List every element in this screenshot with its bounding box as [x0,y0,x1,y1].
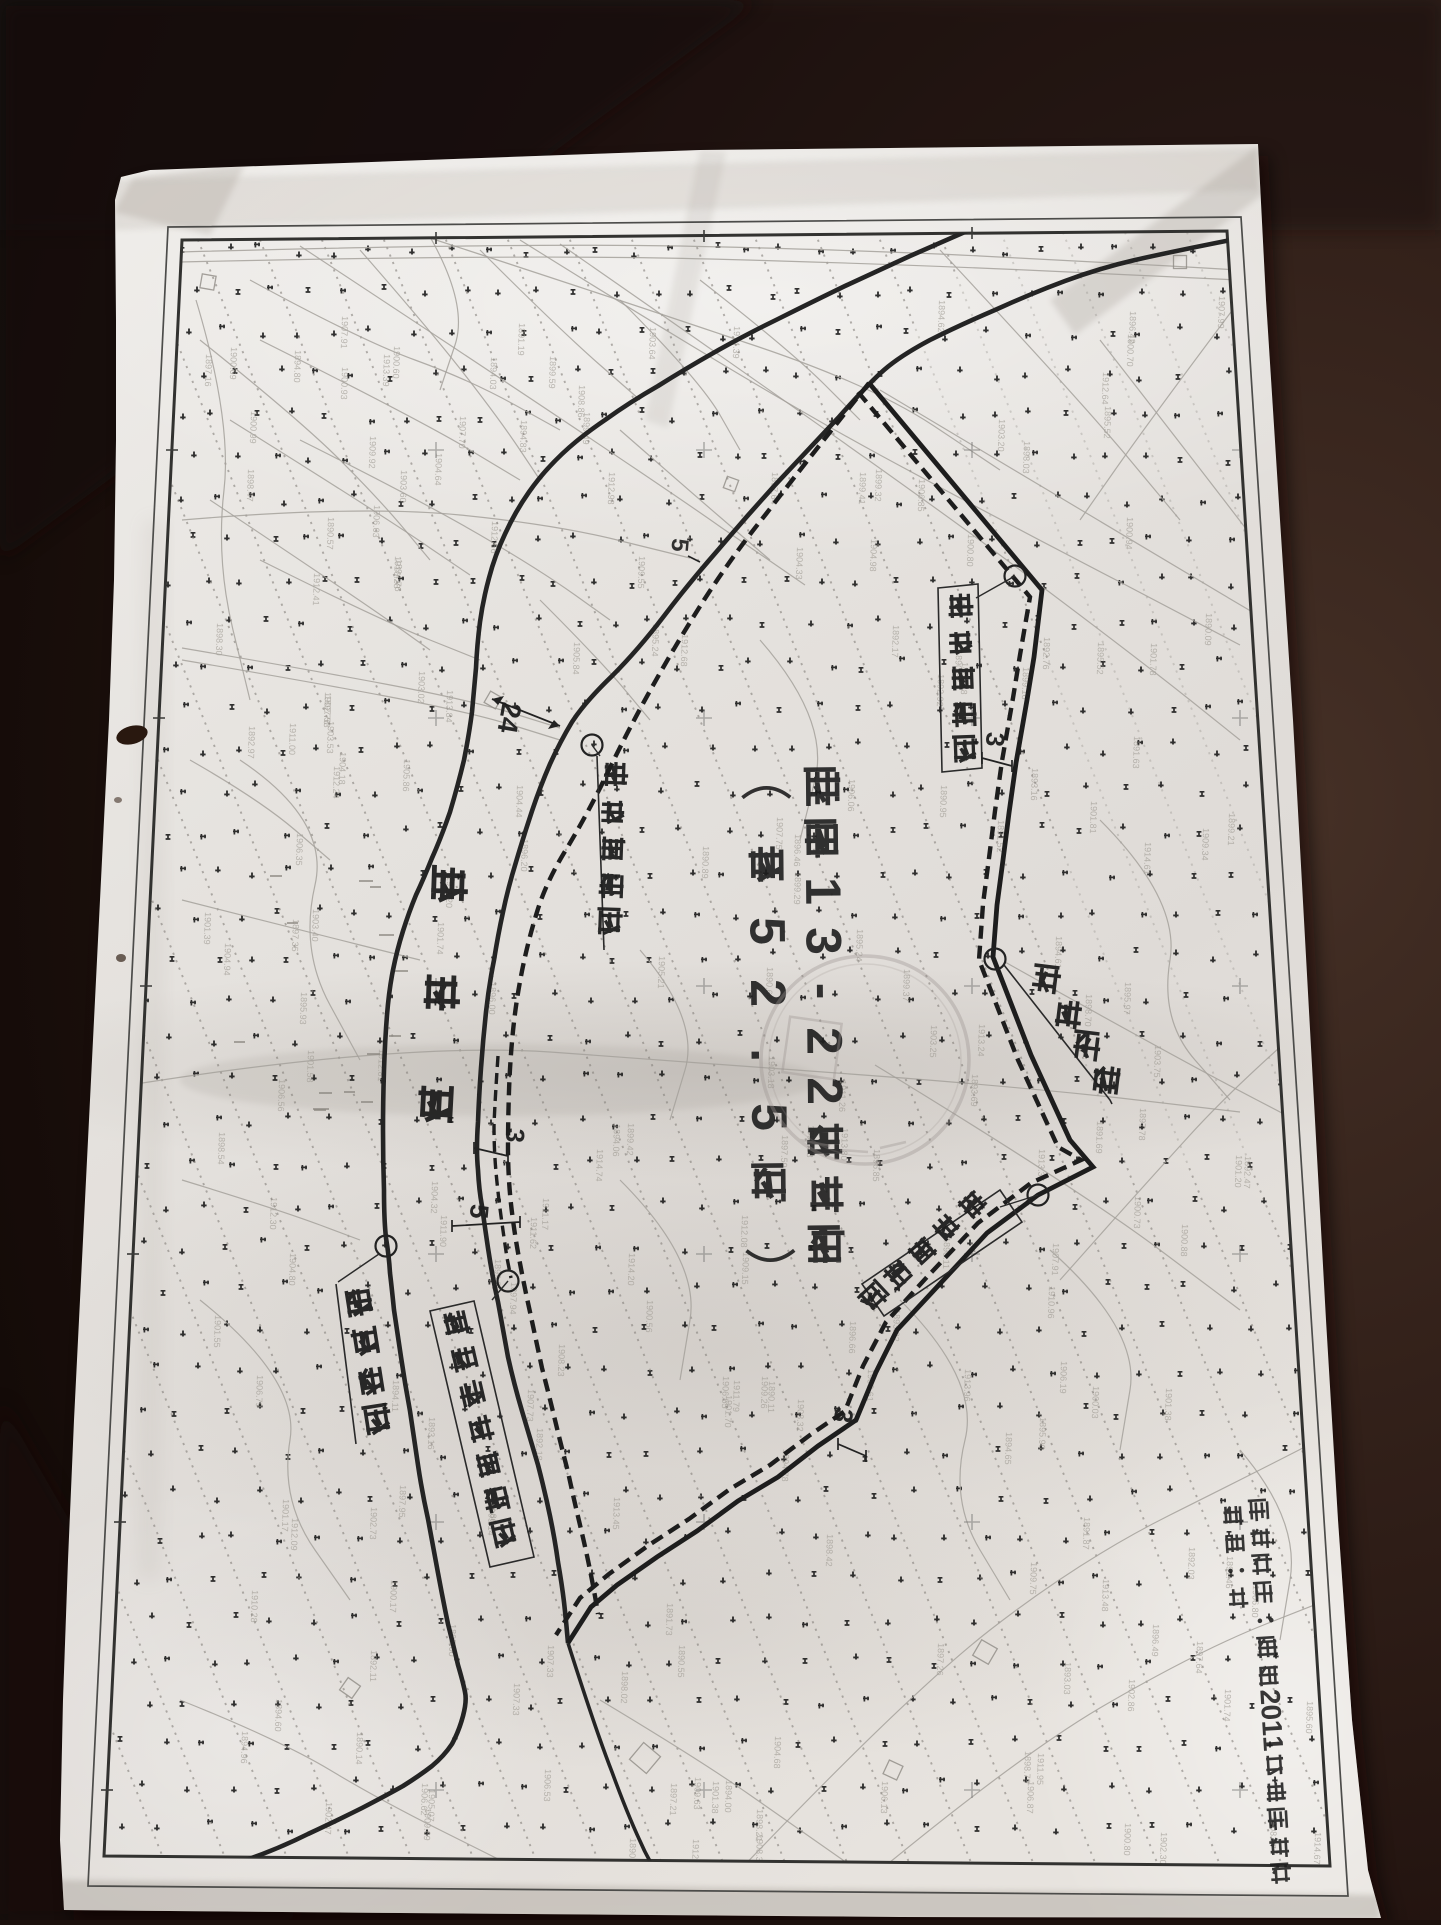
svg-text:1894.65: 1894.65 [1003,1432,1014,1465]
svg-text:1900.80: 1900.80 [1122,1823,1133,1856]
svg-text:1909.34: 1909.34 [1200,828,1211,861]
svg-text:1904.98: 1904.98 [868,539,879,572]
svg-text:2: 2 [797,1077,853,1105]
svg-text:2: 2 [796,1027,852,1055]
svg-text:1906.53: 1906.53 [542,1769,553,1802]
svg-text:1891.19: 1891.19 [516,323,527,356]
svg-text:1894.96: 1894.96 [239,1731,250,1764]
svg-text:1909.26: 1909.26 [759,1376,770,1409]
svg-text:1903.60: 1903.60 [398,470,409,503]
svg-text:1894.11: 1894.11 [390,1380,401,1412]
svg-text:1904.32: 1904.32 [429,1181,440,1214]
svg-text:1897.53: 1897.53 [322,695,333,728]
svg-text:1902.30: 1902.30 [1158,1832,1169,1865]
svg-text:1901.74: 1901.74 [1222,1689,1233,1722]
svg-text:1904.64: 1904.64 [433,453,444,486]
svg-text:1897.21: 1897.21 [668,1783,679,1816]
svg-text:1894.61: 1894.61 [1053,936,1064,969]
svg-text:1904.80: 1904.80 [287,1253,298,1286]
svg-text:1898.47: 1898.47 [245,469,256,502]
svg-text:1899.42: 1899.42 [625,1123,636,1156]
svg-text:1901.58: 1901.58 [305,1050,316,1083]
svg-text:1914.20: 1914.20 [626,1253,637,1286]
svg-text:1903.20: 1903.20 [996,419,1007,452]
svg-text:1892.17: 1892.17 [890,625,901,658]
svg-text:1908.32: 1908.32 [795,1399,806,1432]
svg-text:1894.62: 1894.62 [936,300,947,333]
svg-text:1897.95: 1897.95 [397,1485,408,1518]
svg-text:1903.25: 1903.25 [928,1025,939,1058]
svg-text:1911.00: 1911.00 [287,723,298,755]
svg-text:1896.66: 1896.66 [847,1321,858,1354]
svg-text:1913.39: 1913.39 [381,354,392,387]
svg-text:1895.52: 1895.52 [1095,642,1106,675]
svg-text:1901.39: 1901.39 [202,912,213,945]
svg-text:1898.54: 1898.54 [216,1132,227,1165]
svg-text:1896.46: 1896.46 [792,834,803,867]
svg-text:1913.96: 1913.96 [962,1369,973,1402]
svg-text:1900.56: 1900.56 [644,1300,655,1333]
svg-text:1906.79: 1906.79 [254,1375,265,1408]
svg-text:1896.49: 1896.49 [1150,1624,1161,1657]
svg-text:1896.42: 1896.42 [1127,311,1138,344]
svg-text:1907.91: 1907.91 [339,316,350,349]
svg-text:1914.74: 1914.74 [594,1149,605,1182]
svg-text:1907.33: 1907.33 [545,1645,556,1678]
svg-text:1911.95: 1911.95 [1035,1753,1046,1785]
svg-text:1901.38: 1901.38 [710,1781,721,1814]
svg-text:1900.88: 1900.88 [1179,1224,1190,1257]
svg-text:1901.38: 1901.38 [1163,1388,1174,1421]
svg-text:1912.08: 1912.08 [739,1215,750,1248]
svg-text:1898.30: 1898.30 [214,623,225,656]
svg-text:1902.47: 1902.47 [323,1802,334,1835]
svg-text:1898.02: 1898.02 [619,1671,630,1704]
svg-text:1904.68: 1904.68 [772,1736,783,1769]
svg-text:1904.44: 1904.44 [514,785,525,818]
svg-text:1895.97: 1895.97 [1122,982,1133,1015]
svg-text:1890.14: 1890.14 [354,1732,365,1765]
svg-text:1900.17: 1900.17 [388,1580,399,1613]
svg-text:1898.03: 1898.03 [1021,441,1032,474]
svg-text:1897.16: 1897.16 [203,354,214,387]
svg-text:1899.59: 1899.59 [547,356,558,389]
svg-text:1900.99: 1900.99 [248,411,259,444]
svg-text:1905.84: 1905.84 [571,642,582,675]
svg-text:1895.60: 1895.60 [1304,1701,1315,1734]
svg-text:1907.91: 1907.91 [1050,1243,1061,1276]
svg-text:1901.20: 1901.20 [1233,1155,1244,1188]
svg-text:1892.11: 1892.11 [368,1650,379,1682]
svg-text:1892.03: 1892.03 [1186,1547,1197,1580]
svg-text:1890.57: 1890.57 [325,517,336,550]
svg-text:1909.92: 1909.92 [367,436,378,469]
svg-text:5: 5 [464,1203,495,1220]
svg-text:1893.69: 1893.69 [969,1074,980,1107]
svg-text:1906.19: 1906.19 [1058,1361,1069,1394]
svg-text:1: 1 [795,877,851,905]
svg-text:1907.73: 1907.73 [525,1389,536,1422]
svg-text:3: 3 [980,731,1011,748]
svg-text:3: 3 [500,1127,531,1144]
svg-text:1909.15: 1909.15 [740,1252,751,1285]
svg-text:1893.03: 1893.03 [1062,1662,1073,1695]
svg-text:1900.93: 1900.93 [339,367,350,400]
svg-text:1895.93: 1895.93 [298,992,309,1025]
svg-text:1898.42: 1898.42 [824,1534,835,1567]
svg-text:1902.73: 1902.73 [368,1507,379,1540]
svg-text:1908.86: 1908.86 [576,385,587,418]
svg-text:1911.17: 1911.17 [540,1198,551,1230]
svg-text:1903.40: 1903.40 [310,909,321,942]
svg-text:1900.80: 1900.80 [965,534,976,567]
svg-text:1901.74: 1901.74 [435,922,446,955]
svg-text:1897.64: 1897.64 [1194,1641,1205,1674]
svg-text:1897.59: 1897.59 [779,1135,790,1168]
svg-text:1897.78: 1897.78 [1137,1108,1148,1141]
svg-text:1: 1 [1257,1735,1289,1752]
svg-text:1904.94: 1904.94 [222,943,233,976]
svg-text:1904.33: 1904.33 [794,547,805,580]
svg-text:5: 5 [741,1103,797,1131]
svg-text:1910.96: 1910.96 [1046,1286,1057,1319]
svg-text:1894.83: 1894.83 [518,420,529,453]
svg-text:1903.75: 1903.75 [1152,1045,1163,1078]
svg-text:1893.16: 1893.16 [1029,768,1040,801]
svg-text:1903.64: 1903.64 [647,327,658,360]
svg-text:1891.73: 1891.73 [664,1603,675,1636]
svg-text:1899.32: 1899.32 [873,469,884,502]
svg-text:1909.63: 1909.63 [692,1777,703,1810]
svg-text:1912.68: 1912.68 [679,634,690,667]
svg-text:1910.28: 1910.28 [249,1590,260,1623]
svg-text:1907.33: 1907.33 [511,1683,522,1716]
svg-text:1901.55: 1901.55 [212,1315,223,1348]
svg-text:1907.75: 1907.75 [774,817,785,850]
svg-text:1906.87: 1906.87 [1025,1781,1036,1814]
svg-text:1908.23: 1908.23 [556,1344,567,1377]
svg-text:1900.73: 1900.73 [1132,1196,1143,1229]
svg-text:1901.81: 1901.81 [1088,801,1099,834]
svg-text:1906.13: 1906.13 [879,1781,890,1814]
svg-text:1914.61: 1914.61 [1142,842,1153,875]
svg-text:1913.45: 1913.45 [611,1497,622,1530]
svg-text:3: 3 [795,927,851,955]
svg-text:5: 5 [739,917,795,945]
svg-text:1914.67: 1914.67 [1312,1832,1323,1865]
svg-text:1909.75: 1909.75 [1028,1562,1039,1595]
svg-text:1911.90: 1911.90 [438,1215,449,1247]
svg-text:1913.84: 1913.84 [444,690,455,723]
svg-text:1903.02: 1903.02 [416,671,427,704]
svg-text:1912.64: 1912.64 [1100,372,1111,405]
svg-text:1890.09: 1890.09 [1203,613,1214,646]
svg-text:1897.26: 1897.26 [935,1643,946,1676]
svg-text:1913.80: 1913.80 [839,1128,850,1161]
svg-text:1892.97: 1892.97 [246,726,257,759]
svg-text:1906.56: 1906.56 [276,1079,287,1112]
svg-text:1890.89: 1890.89 [700,846,711,879]
svg-text:1894.00: 1894.00 [723,1780,734,1813]
svg-text:1906.06: 1906.06 [846,779,857,812]
svg-text:1890.55: 1890.55 [676,1645,687,1678]
svg-text:1913.24: 1913.24 [976,1024,987,1057]
svg-text:1894.80: 1894.80 [292,350,303,383]
svg-text:1899.21: 1899.21 [1226,813,1237,846]
svg-text:1901.17: 1901.17 [280,1499,291,1532]
svg-text:5: 5 [665,537,693,553]
svg-text:1899.41: 1899.41 [857,472,868,505]
svg-text:1891.63: 1891.63 [1131,736,1142,769]
svg-text:1910.28: 1910.28 [392,556,403,589]
svg-text:1900.03: 1900.03 [1090,1386,1101,1419]
svg-text:1905.86: 1905.86 [401,759,412,792]
svg-text:1909.55: 1909.55 [636,556,647,589]
svg-text:1902.86: 1902.86 [1126,1679,1137,1712]
svg-text:1913.48: 1913.48 [1100,1579,1111,1612]
svg-text:1891.69: 1891.69 [1094,1121,1105,1154]
svg-text:1894.60: 1894.60 [273,1699,284,1732]
svg-text:1890.95: 1890.95 [938,785,949,818]
